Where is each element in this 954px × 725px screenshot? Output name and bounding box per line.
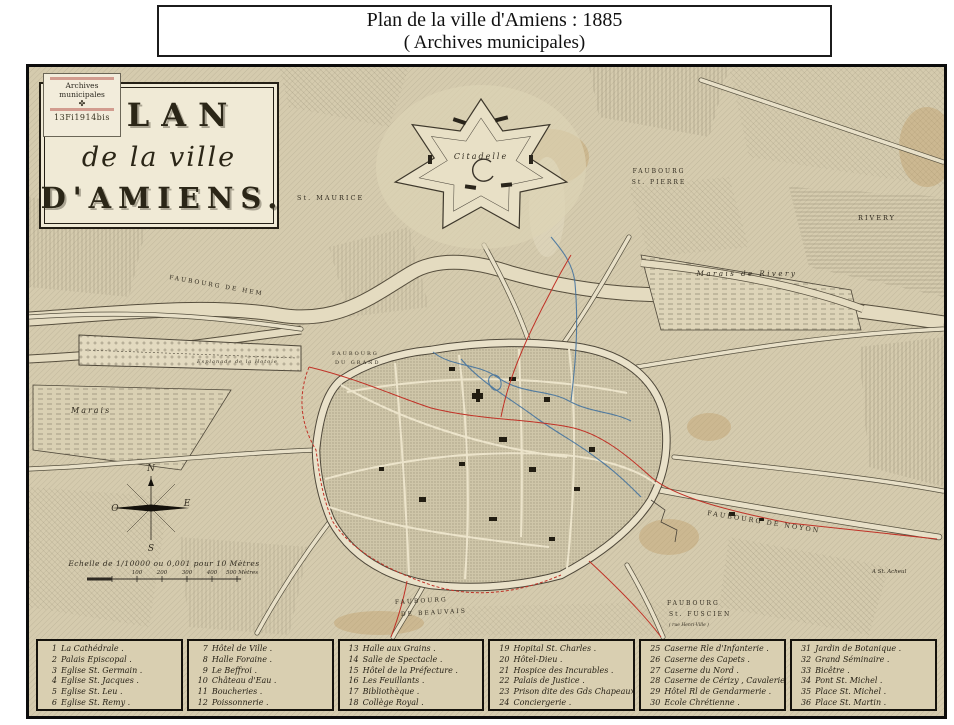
citadelle-fort [376,85,586,249]
stamp-emblem-icon: ✤ [44,99,120,108]
legend-item: 28Caserne de Cérizy , Cavalerie . [648,676,781,687]
legend-item: 20Hôtel-Dieu . [497,655,630,666]
label-faubourg-du-grand-2: DU GRAND [335,360,381,366]
legend-item: 33Bicêtre . [799,666,932,677]
legend-item: 36Place St. Martin . [799,698,932,709]
legend-column-4: 19Hopital St. Charles . 20Hôtel-Dieu . 2… [488,639,635,711]
stamp-title: Archives municipales [44,82,120,99]
label-marais: Marais [70,406,111,415]
scale-caption: Echelle de 1/10000 ou 0,001 pour 10 Mètr… [67,559,259,568]
legend-item: 30Ecole Chrétienne . [648,698,781,709]
stamp-call-number: 13Fi1914bis [44,113,120,123]
legend-column-3: 13Halle aux Grains . 14Salle de Spectacl… [338,639,485,711]
legend-item: 19Hopital St. Charles . [497,644,630,655]
compass-s: S [148,544,154,554]
legend-item: 3Eglise St. Germain . [45,666,178,677]
banner-subtitle: ( Archives municipales) [404,32,586,54]
compass-o: O [111,504,119,514]
legend-item: 11Boucheries . [196,687,329,698]
banner-title: Plan de la ville d'Amiens : 1885 [367,9,623,32]
stamp-decoration [50,77,114,80]
label-st-maurice: St. MAURICE [297,194,364,202]
legend-item: 8Halle Foraine . [196,655,329,666]
scale-tick-500: 500 Mètres [226,569,258,576]
legend-item: 14Salle de Spectacle . [347,655,480,666]
legend-item: 35Place St. Michel . [799,687,932,698]
cartouche-title-amiens: D'AMIENS. [34,181,285,215]
label-esplanade-hotoie: Esplanade de la Hotoie [196,359,278,365]
label-rivery: RIVERY [858,214,896,222]
legend-item: 26Caserne des Capets . [648,655,781,666]
legend-item: 7Hôtel de Ville . [196,644,329,655]
cartouche-title-ville: de la ville [82,142,236,173]
legend-item: 10Château d'Eau . [196,676,329,687]
title-banner: Plan de la ville d'Amiens : 1885 ( Archi… [157,5,832,57]
legend-item: 24Conciergerie . [497,698,630,709]
legend-item: 6Eglise St. Remy . [45,698,178,709]
scale-tick-100: 100 [132,570,143,576]
legend-item: 21Hospice des Incurables . [497,666,630,677]
legend-item: 25Caserne Rle d'Infanterie . [648,644,781,655]
label-faubourg-st-fuscien-2: St. FUSCIEN [669,611,731,618]
legend-item: 27Caserne du Nord . [648,666,781,677]
legend-item: 15Hôtel de la Préfecture . [347,666,480,677]
legend-item: 9Le Beffroi . [196,666,329,677]
label-faubourg-du-grand-1: FAUBOURG [332,351,379,357]
legend-item: 31Jardin de Botanique . [799,644,932,655]
map-frame: N E S O Echelle de 1/10000 ou 0,001 pour… [26,64,947,719]
legend-item: 1La Cathédrale . [45,644,178,655]
legend-item: 34Pont St. Michel . [799,676,932,687]
compass-e: E [183,499,191,509]
legend-item: 22Palais de Justice . [497,676,630,687]
legend-item: 13Halle aux Grains . [347,644,480,655]
legend-item: 23Prison dite des Gds Chapeaux . [497,687,630,698]
archive-stamp: Archives municipales ✤ 13Fi1914bis [43,73,121,137]
stamp-decoration-2 [50,108,114,111]
legend-item: 32Grand Séminaire . [799,655,932,666]
label-faubourg-st-fuscien-1: FAUBOURG [667,600,720,607]
legend-column-2: 7Hôtel de Ville . 8Halle Foraine . 9Le B… [187,639,334,711]
legend-item: 16Les Feuillants . [347,676,480,687]
label-marais-de-rivery: Marais de Rivery [696,270,798,278]
legend-item: 18Collège Royal . [347,698,480,709]
scale-tick-200: 200 [156,570,168,576]
legend-column-6: 31Jardin de Botanique . 32Grand Séminair… [790,639,937,711]
scale-tick-400: 400 [206,570,218,576]
legend-column-5: 25Caserne Rle d'Infanterie . 26Caserne d… [639,639,786,711]
legend-item: 29Hôtel Rl de Gendarmerie . [648,687,781,698]
label-faubourg-st-fuscien-3: ( rue Henri-Ville ) [669,621,709,628]
page: Plan de la ville d'Amiens : 1885 ( Archi… [0,0,954,725]
legend-item: 5Eglise St. Leu . [45,687,178,698]
legend-item: 12Poissonnerie . [196,698,329,709]
label-citadelle: Citadelle [454,152,508,161]
legend-item: 17Bibliothèque . [347,687,480,698]
legend-item: 4Eglise St. Jacques . [45,676,178,687]
legend-column-1: 1La Cathédrale . 2Palais Episcopal . 3Eg… [36,639,183,711]
compass-n: N [146,464,156,474]
map-legend: 1La Cathédrale . 2Palais Episcopal . 3Eg… [36,639,937,711]
legend-item: 2Palais Episcopal . [45,655,178,666]
label-faubourg-st-pierre-2: St. PIERRE [632,179,687,186]
label-faubourg-st-pierre-1: FAUBOURG [633,168,686,175]
scale-tick-300: 300 [182,570,193,576]
label-st-acheul: A St. Acheul [871,569,907,575]
